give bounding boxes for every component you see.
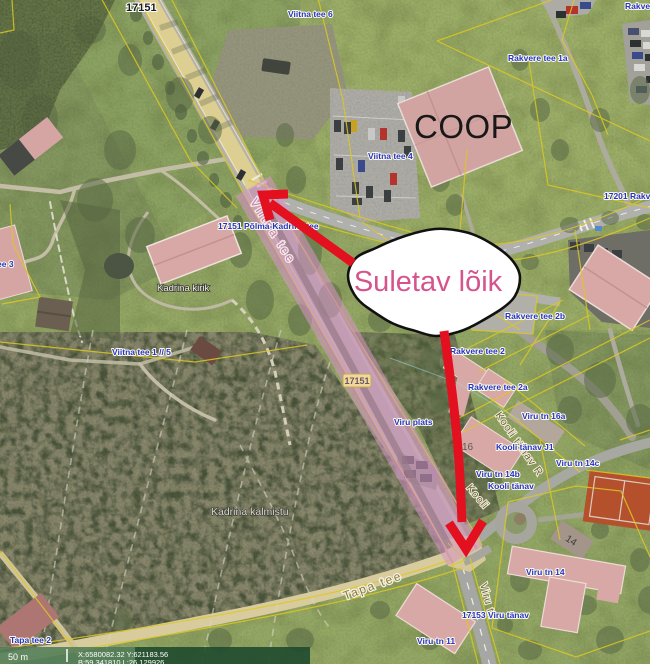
svg-text:Kadrina kirik: Kadrina kirik	[157, 283, 210, 294]
svg-text:B:59.341810 L:26.129926: B:59.341810 L:26.129926	[78, 658, 164, 664]
svg-text:Kooli tänav J1: Kooli tänav J1	[496, 442, 554, 452]
svg-text:ee 3: ee 3	[0, 259, 14, 269]
svg-text:Viitna tee 4: Viitna tee 4	[368, 151, 413, 161]
svg-text:Viru plats: Viru plats	[394, 417, 433, 427]
svg-text:Tapa tee 2: Tapa tee 2	[10, 635, 51, 645]
svg-text:50 m: 50 m	[8, 652, 28, 662]
svg-text:Viru tn 14c: Viru tn 14c	[556, 458, 600, 468]
svg-text:Rakvere tee 2: Rakvere tee 2	[450, 346, 505, 356]
svg-text:Rakvere tee 2a: Rakvere tee 2a	[468, 382, 528, 392]
svg-text:Viru tn 14b: Viru tn 14b	[476, 469, 520, 479]
svg-text:Viitna tee 6: Viitna tee 6	[288, 9, 333, 19]
svg-text:COOP: COOP	[414, 108, 513, 145]
svg-text:Suletav lõik: Suletav lõik	[354, 266, 503, 298]
svg-text:Rakvere tee 1a: Rakvere tee 1a	[508, 53, 568, 63]
svg-text:Viitna tee 1 // 5: Viitna tee 1 // 5	[112, 347, 171, 357]
svg-text:Viru tn 14: Viru tn 14	[526, 567, 565, 577]
svg-text:Viru tn 11: Viru tn 11	[417, 636, 455, 646]
svg-text:Viru tn 16a: Viru tn 16a	[522, 411, 566, 421]
svg-text:Kooli tänav: Kooli tänav	[488, 481, 534, 491]
svg-text:Rakvere tee 2b: Rakvere tee 2b	[505, 311, 565, 321]
svg-text:16: 16	[462, 442, 474, 453]
svg-text:Rakvere: Rakvere	[625, 1, 650, 11]
svg-text:17151: 17151	[126, 2, 157, 14]
svg-text:17153 Viru tänav: 17153 Viru tänav	[462, 610, 529, 620]
svg-text:17201 Rakv: 17201 Rakv	[604, 191, 650, 201]
svg-text:17151: 17151	[344, 376, 369, 386]
svg-text:Kadrina kalmistu: Kadrina kalmistu	[211, 506, 289, 518]
